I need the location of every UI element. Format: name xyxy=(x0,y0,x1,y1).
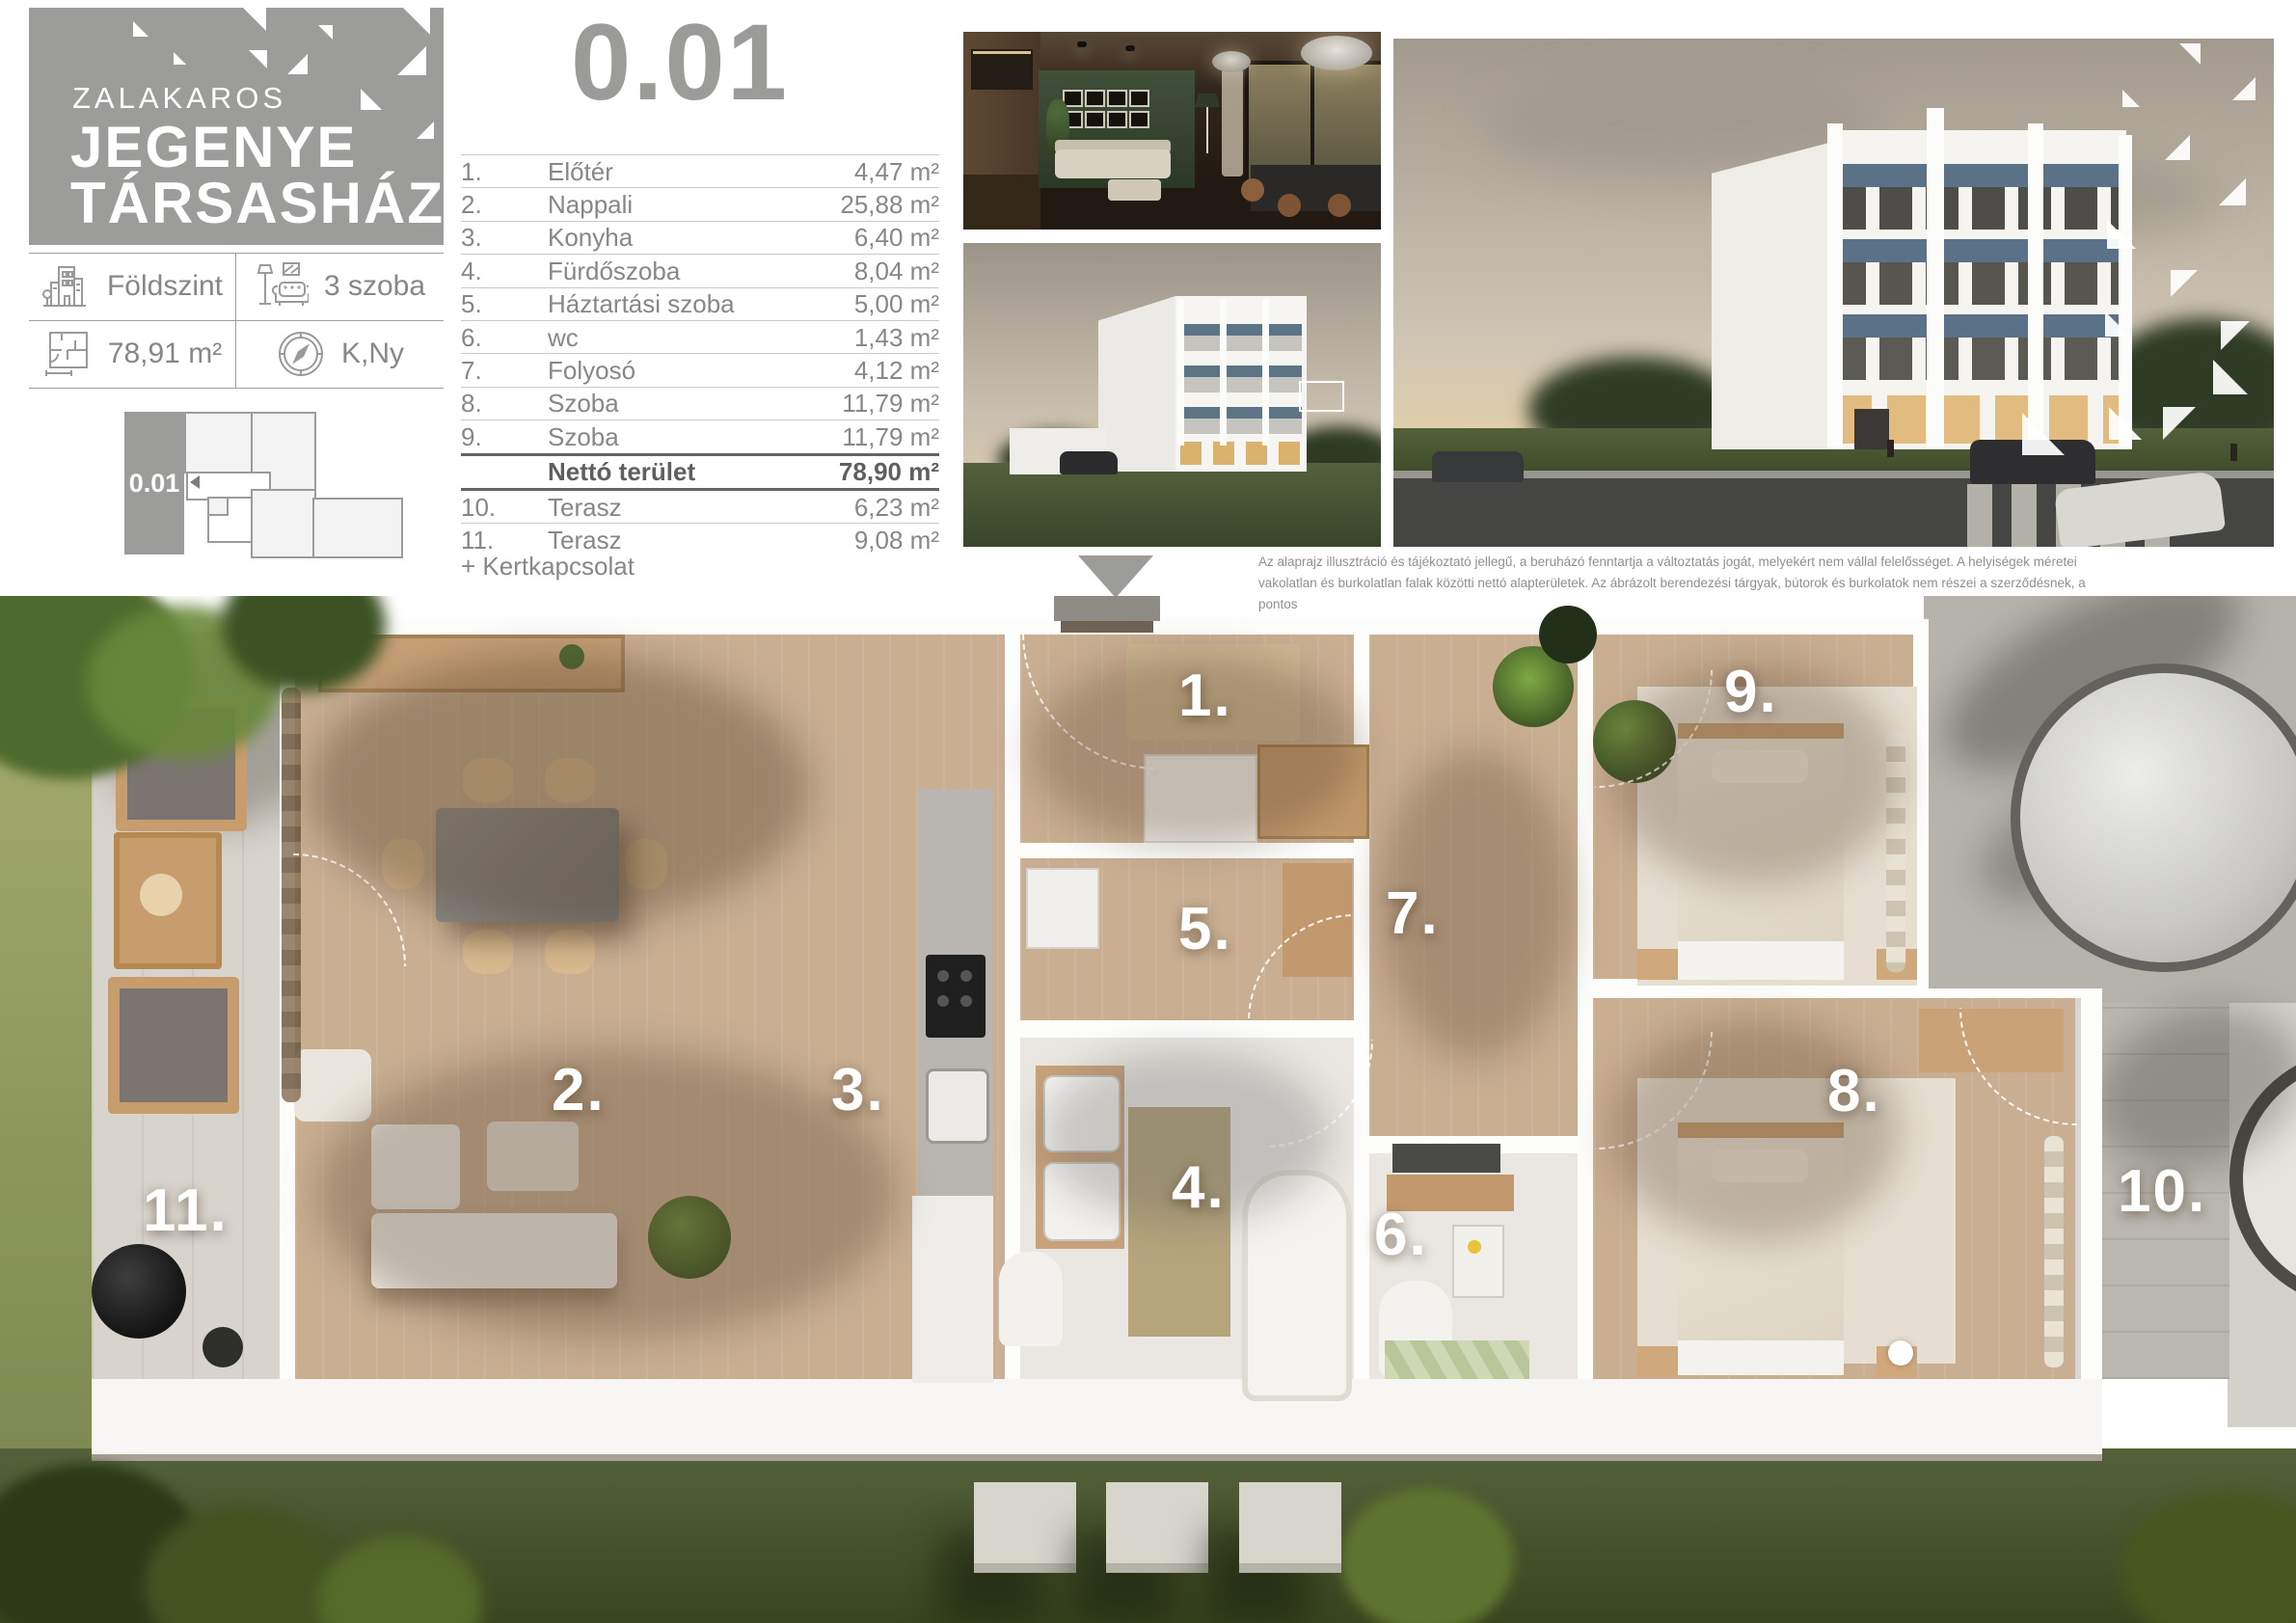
building-icon xyxy=(41,261,92,311)
row-name: Fürdőszoba xyxy=(548,258,854,284)
curtain xyxy=(2044,1136,2064,1367)
row-name: Konyha xyxy=(548,225,854,250)
floor-lamp-shade xyxy=(1195,94,1220,107)
sofa-lamp-icon xyxy=(255,261,309,311)
pylon xyxy=(2028,123,2043,449)
balcony-rail xyxy=(1180,377,1302,392)
unit-number-title: 0.01 xyxy=(571,0,789,124)
balcony-band xyxy=(1833,239,2122,262)
room-label-1: 1. xyxy=(1178,662,1232,730)
row-no: 7. xyxy=(461,358,548,383)
pylon xyxy=(2119,135,2132,449)
curtain xyxy=(1222,68,1243,176)
info-rooms-label: 3 szoba xyxy=(324,270,425,303)
building-gable xyxy=(1712,143,1829,449)
down-arrow-icon xyxy=(1078,555,1153,598)
pylon xyxy=(1927,108,1944,449)
room-label-3: 3. xyxy=(831,1056,885,1124)
floor-plan-render: 1. 2. 3. 4. 5. 6. 7. 8. 9. 10. 11. xyxy=(0,596,2296,1623)
person xyxy=(2230,444,2237,461)
info-area: 78,91 m² xyxy=(29,321,236,389)
wall xyxy=(1578,635,1593,1379)
row-area: 11,79 m² xyxy=(842,424,939,449)
sofa xyxy=(371,1213,617,1288)
plant xyxy=(648,1196,731,1279)
table-row: 7.Folyosó4,12 m² xyxy=(461,354,939,387)
picture-frame xyxy=(1107,111,1127,128)
room-label-5: 5. xyxy=(1178,895,1232,963)
sofa-chaise xyxy=(371,1124,460,1209)
triangle-icon xyxy=(403,8,430,35)
picture-frame xyxy=(1129,90,1149,107)
row-no: 2. xyxy=(461,192,548,217)
row-name: Folyosó xyxy=(548,358,854,383)
info-floor: Földszint xyxy=(29,254,236,321)
balcony-band xyxy=(1833,314,2122,338)
concrete-pad xyxy=(974,1482,1076,1573)
row-area: 11,79 m² xyxy=(842,391,939,416)
flyer-sheet: ZALAKAROS JEGENYE TÁRSASHÁZ 0.01 Földszi… xyxy=(0,0,2296,1623)
row-no: 4. xyxy=(461,258,548,284)
room-label-7: 7. xyxy=(1386,879,1440,948)
locator-shape xyxy=(251,489,316,558)
leaf-mat xyxy=(1385,1340,1529,1379)
garden-note: + Kertkapcsolat xyxy=(461,552,635,582)
row-name: Szoba xyxy=(548,391,842,416)
row-name: Szoba xyxy=(548,424,842,449)
chair xyxy=(545,758,595,802)
row-area: 8,04 m² xyxy=(854,258,939,284)
wall xyxy=(1020,1020,1354,1038)
row-name: Háztartási szoba xyxy=(548,291,854,316)
site-locator: 0.01 xyxy=(124,412,406,558)
ottoman xyxy=(487,1122,579,1191)
dining-table xyxy=(1251,165,1381,211)
bbq-grill xyxy=(92,1244,186,1339)
logo-city: ZALAKAROS xyxy=(72,81,286,116)
sink xyxy=(1043,1162,1121,1241)
person xyxy=(1887,440,1894,457)
room-label-2: 2. xyxy=(552,1056,606,1124)
burner xyxy=(937,995,949,1007)
bathtub xyxy=(1242,1170,1352,1401)
picture-frame xyxy=(1107,90,1127,107)
chair xyxy=(545,930,595,974)
lawn xyxy=(963,463,1381,547)
row-no: 6. xyxy=(461,325,548,350)
total-area: 78,90 m² xyxy=(839,459,939,484)
entrance xyxy=(1854,409,1889,449)
car xyxy=(1432,451,1524,482)
triangle-icon xyxy=(2171,270,2198,297)
kitchen-counter xyxy=(963,175,1040,230)
triangle-icon xyxy=(2122,90,2140,107)
dining-table xyxy=(436,808,619,922)
row-area: 4,47 m² xyxy=(854,159,939,184)
pylon xyxy=(1220,299,1227,446)
row-area: 6,40 m² xyxy=(854,225,939,250)
compass-icon xyxy=(276,329,326,379)
entrance-step xyxy=(1054,596,1160,621)
entrance-door xyxy=(1061,621,1153,633)
row-area: 1,43 m² xyxy=(854,325,939,350)
room-label-4: 4. xyxy=(1172,1153,1226,1222)
grass-left xyxy=(0,627,92,1451)
triangle-icon xyxy=(2219,178,2246,205)
room-label-6: 6. xyxy=(1374,1201,1428,1269)
nightstand xyxy=(1637,1346,1678,1377)
concrete-pad xyxy=(1106,1482,1208,1573)
ground-floor-windows xyxy=(1180,442,1302,465)
building-gable xyxy=(1098,296,1175,472)
plant-pot xyxy=(203,1327,243,1367)
triangle-icon xyxy=(2179,43,2201,65)
triangle-icon xyxy=(397,46,426,75)
chair xyxy=(463,758,513,802)
outdoor-armchair xyxy=(108,977,239,1114)
balcony-rail xyxy=(1180,336,1302,351)
kitchen-cabinet xyxy=(912,1196,993,1383)
dresser xyxy=(1144,754,1257,843)
building-photo-small xyxy=(963,243,1381,547)
building-photo-large xyxy=(1393,39,2274,547)
ceiling-lamp xyxy=(1301,36,1372,70)
kitchen-hood xyxy=(971,49,1033,90)
table-row: 6.wc1,43 m² xyxy=(461,321,939,354)
bath-mat xyxy=(1128,1107,1230,1337)
burner xyxy=(937,970,949,982)
room-label-8: 8. xyxy=(1827,1057,1881,1125)
armchair xyxy=(294,1049,371,1122)
sink xyxy=(1043,1075,1121,1152)
bed-footer xyxy=(1678,1340,1844,1375)
curtain xyxy=(1886,731,1905,972)
nightstand xyxy=(1637,949,1678,980)
chair xyxy=(1241,178,1264,202)
logo-name-line2: TÁRSASHÁZ xyxy=(70,170,444,236)
radiator xyxy=(1392,1144,1500,1173)
plant xyxy=(559,644,584,669)
triangle-icon xyxy=(2165,135,2190,160)
table-row: 9.Szoba11,79 m² xyxy=(461,420,939,452)
info-area-label: 78,91 m² xyxy=(108,338,222,370)
triangle-icon xyxy=(243,8,266,31)
row-no: 11. xyxy=(461,527,548,553)
balcony-band xyxy=(1180,407,1302,419)
chair xyxy=(1278,194,1301,217)
locator-unit-block: 0.01 xyxy=(124,412,184,555)
chair xyxy=(463,930,513,974)
floor-lamp-pole xyxy=(1206,103,1208,153)
row-area: 25,88 m² xyxy=(840,192,939,217)
row-name: Terasz xyxy=(548,527,854,553)
pillow xyxy=(1712,750,1808,783)
car xyxy=(1060,451,1118,474)
row-no: 5. xyxy=(461,291,548,316)
unit-highlight-outline xyxy=(1299,381,1344,412)
window-row xyxy=(1833,262,2122,305)
chair xyxy=(625,839,667,889)
picture-frame xyxy=(1085,111,1105,128)
triangle-icon xyxy=(249,50,267,68)
table-row: 4.Fürdőszoba8,04 m² xyxy=(461,255,939,287)
table-row: 8.Szoba11,79 m² xyxy=(461,388,939,420)
table-total-row: Nettó terület78,90 m² xyxy=(461,453,939,491)
room-label-9: 9. xyxy=(1724,658,1778,726)
sink xyxy=(926,1068,989,1144)
window-row xyxy=(1833,338,2122,380)
info-orientation-label: K,Ny xyxy=(341,338,404,370)
info-orientation: K,Ny xyxy=(236,321,444,389)
table-row: 3.Konyha6,40 m² xyxy=(461,222,939,255)
picture-frame xyxy=(1085,90,1105,107)
bottom-walkway xyxy=(92,1379,2102,1461)
row-area: 5,00 m² xyxy=(854,291,939,316)
locator-shape xyxy=(312,498,403,558)
faucet-accent xyxy=(1468,1240,1481,1254)
plant xyxy=(1539,606,1597,663)
row-no: 1. xyxy=(461,159,548,184)
row-area: 6,23 m² xyxy=(854,495,939,520)
balcony-band xyxy=(1833,164,2122,187)
sofa xyxy=(1055,149,1171,178)
triangle-icon xyxy=(318,25,333,40)
balcony-band xyxy=(1180,365,1302,377)
spot-light xyxy=(1077,41,1087,47)
led-strip xyxy=(973,51,1031,54)
balcony-rail xyxy=(1180,419,1302,434)
row-name: Előtér xyxy=(548,159,854,184)
wall xyxy=(1020,843,1354,858)
window-row xyxy=(1833,187,2122,230)
bed-footer xyxy=(1678,941,1844,980)
chair xyxy=(1328,194,1351,217)
row-no: 3. xyxy=(461,225,548,250)
bed-headboard xyxy=(1678,1123,1844,1138)
info-floor-label: Földszint xyxy=(107,270,223,303)
balcony-band xyxy=(1180,324,1302,336)
unit-info-grid: Földszint 3 szoba 78,91 m² xyxy=(29,253,444,389)
table-row: 10.Terasz6,23 m² xyxy=(461,491,939,524)
pillow xyxy=(1712,1150,1808,1182)
row-no: 8. xyxy=(461,391,548,416)
triangle-icon xyxy=(287,54,308,74)
ceiling-lamp xyxy=(1212,51,1251,72)
pylon xyxy=(1262,299,1269,446)
washing-machine xyxy=(1026,868,1099,949)
interior-photo xyxy=(963,32,1381,230)
triangle-icon xyxy=(361,89,382,110)
table-decor xyxy=(140,874,182,916)
row-name: Terasz xyxy=(548,495,854,520)
outdoor-armchair xyxy=(116,697,247,831)
table-row: 5.Háztartási szoba5,00 m² xyxy=(461,288,939,321)
locator-shape xyxy=(184,412,255,473)
pylon xyxy=(1827,123,1843,449)
room-label-11: 11. xyxy=(143,1177,229,1245)
room-label-10: 10. xyxy=(2118,1157,2206,1226)
row-area: 9,08 m² xyxy=(854,527,939,553)
table-lamp xyxy=(1888,1340,1913,1366)
toilet xyxy=(999,1252,1063,1346)
triangle-icon xyxy=(174,52,186,65)
ottoman xyxy=(1108,179,1161,201)
triangle-icon xyxy=(133,21,149,37)
triangle-icon xyxy=(2232,77,2255,100)
table-row: 2.Nappali25,88 m² xyxy=(461,188,939,221)
floorplan-icon xyxy=(42,329,93,379)
concrete-pad xyxy=(1239,1482,1341,1573)
brand-logo: ZALAKAROS JEGENYE TÁRSASHÁZ xyxy=(29,8,444,245)
burner xyxy=(960,995,972,1007)
total-label: Nettó terület xyxy=(548,459,839,484)
spot-light xyxy=(1125,45,1135,51)
info-rooms: 3 szoba xyxy=(236,254,444,321)
chair xyxy=(382,839,424,889)
locator-shape xyxy=(207,497,229,516)
triangle-icon xyxy=(417,122,434,139)
row-area: 4,12 m² xyxy=(854,358,939,383)
burner xyxy=(960,970,972,982)
wardrobe xyxy=(1257,744,1369,839)
cooktop xyxy=(926,955,986,1038)
pylon xyxy=(1177,299,1184,446)
room-table: 1.Előtér4,47 m² 2.Nappali25,88 m² 3.Kony… xyxy=(461,154,939,556)
sink xyxy=(1452,1225,1504,1298)
locator-unit-id: 0.01 xyxy=(129,469,180,499)
row-name: wc xyxy=(548,325,854,350)
row-name: Nappali xyxy=(548,192,840,217)
row-no: 9. xyxy=(461,424,548,449)
picture-frame xyxy=(1129,111,1149,128)
row-no: 10. xyxy=(461,495,548,520)
table-row: 1.Előtér4,47 m² xyxy=(461,154,939,188)
